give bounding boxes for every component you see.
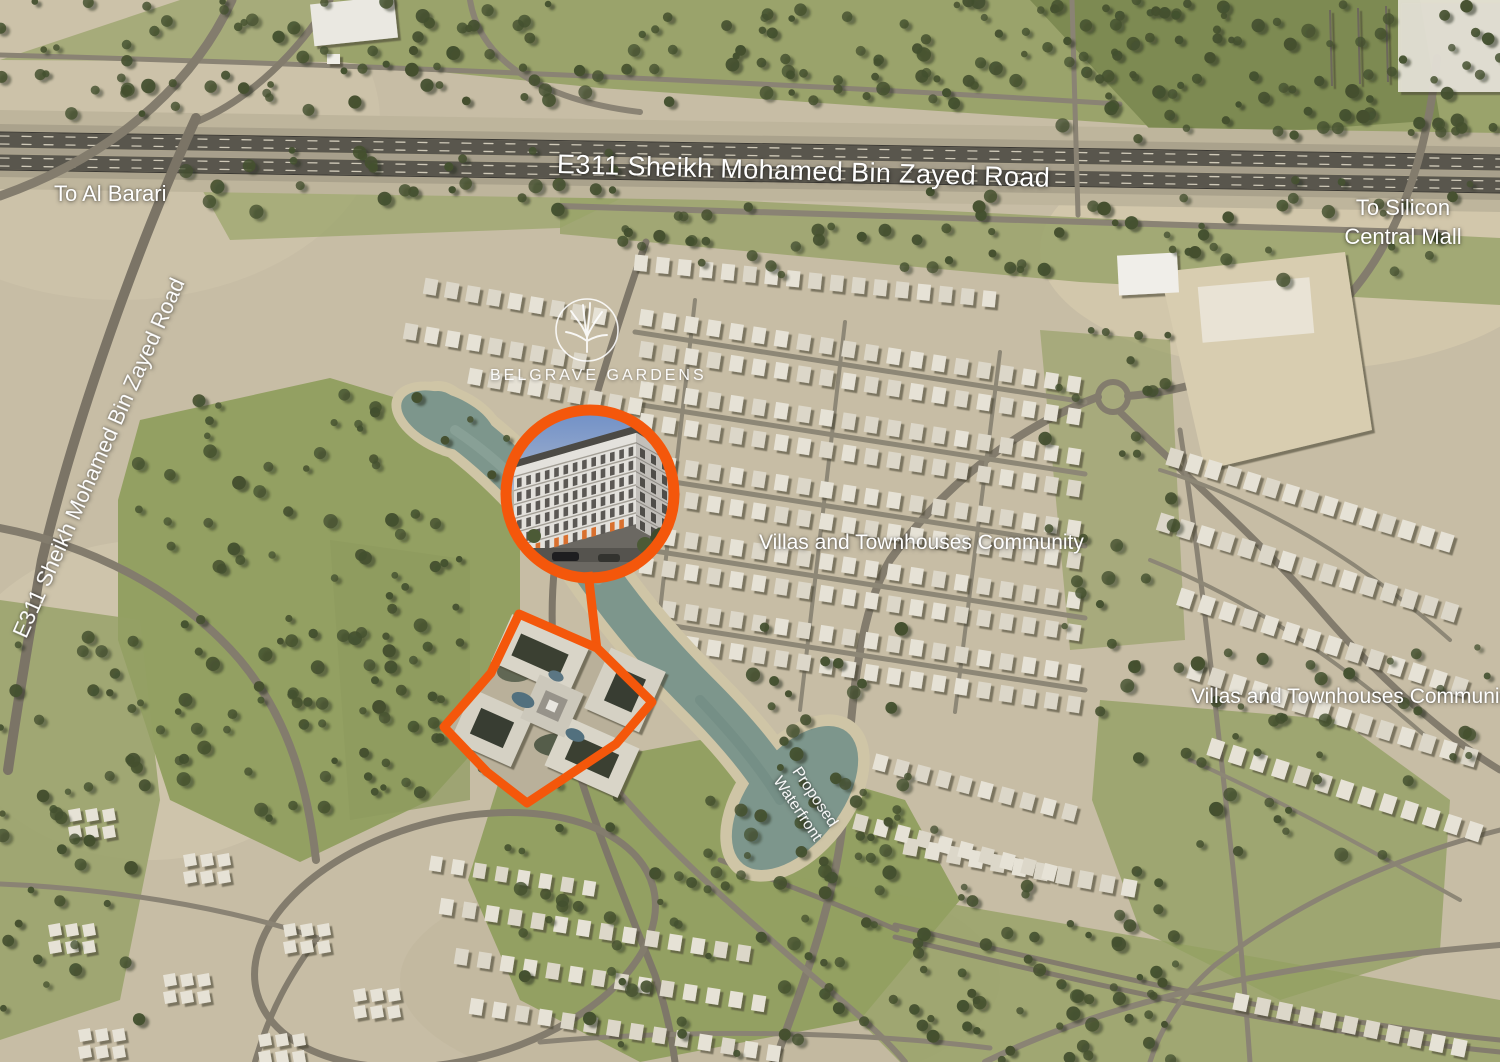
direction-silicon-central-mall: To Silicon Central Mall: [1308, 193, 1498, 251]
brand-logo-name: BELGRAVE GARDENS: [490, 367, 690, 385]
community-label-center: Villas and Townhouses Community: [759, 531, 1084, 555]
direction-silicon-line2: Central Mall: [1308, 222, 1498, 251]
direction-al-barari: To Al Barari: [54, 181, 167, 207]
community-label-right: Villas and Townhouses Community: [1191, 685, 1500, 709]
direction-silicon-line1: To Silicon: [1308, 193, 1498, 222]
location-map: E311 Sheikh Mohamed Bin Zayed Road To Al…: [0, 0, 1500, 1062]
